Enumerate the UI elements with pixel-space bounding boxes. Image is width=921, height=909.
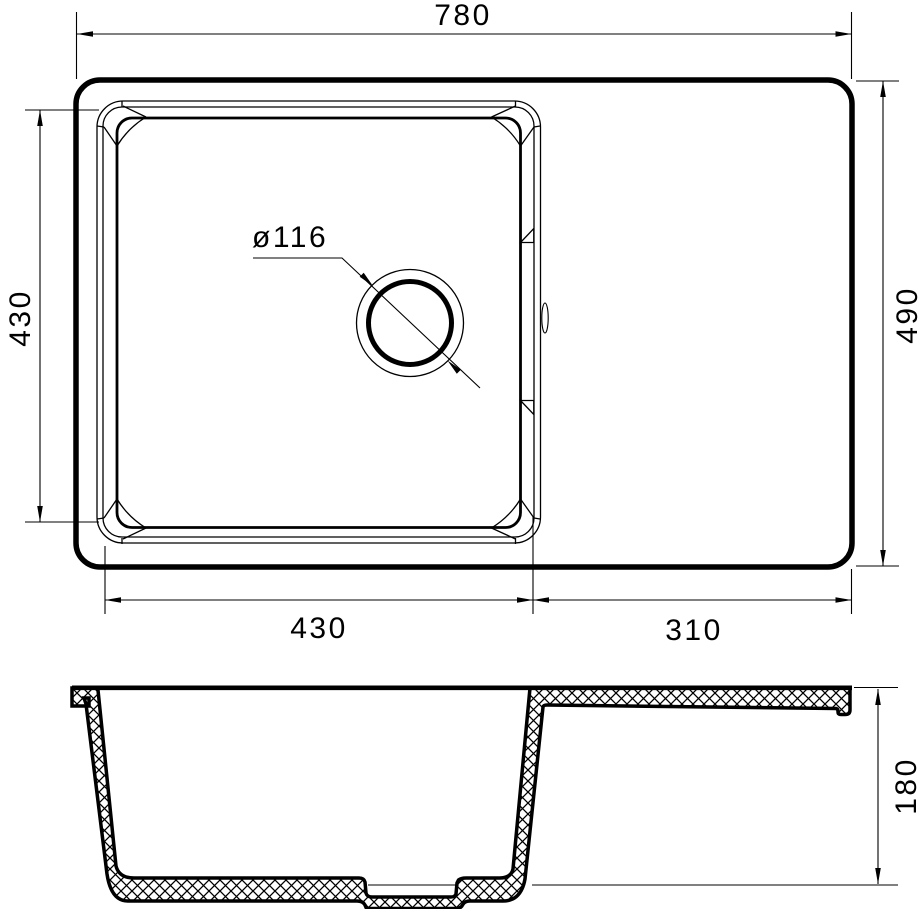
dimension-overall-depth: 490	[856, 81, 921, 566]
bowl-width-label: 430	[290, 612, 348, 645]
dimension-drainboard-width: 310	[533, 597, 852, 647]
drainboard-width-label: 310	[665, 614, 723, 647]
section-view: 180	[72, 688, 921, 909]
bowl-height-label: 430	[4, 289, 37, 347]
bowl-depth-label: 180	[890, 757, 921, 815]
overall-depth-label: 490	[891, 286, 921, 344]
top-view: ø116 780 490 430	[4, 0, 921, 647]
technical-drawing-sheet: ø116 780 490 430	[0, 0, 921, 909]
dimension-bowl-depth: 180	[875, 689, 921, 884]
dimension-overall-width: 780	[77, 0, 852, 79]
section-material	[72, 688, 850, 909]
sink-drawing-canvas: ø116 780 490 430	[0, 0, 921, 909]
drain-diameter-label: ø116	[252, 221, 328, 254]
overall-width-label: 780	[434, 0, 492, 32]
